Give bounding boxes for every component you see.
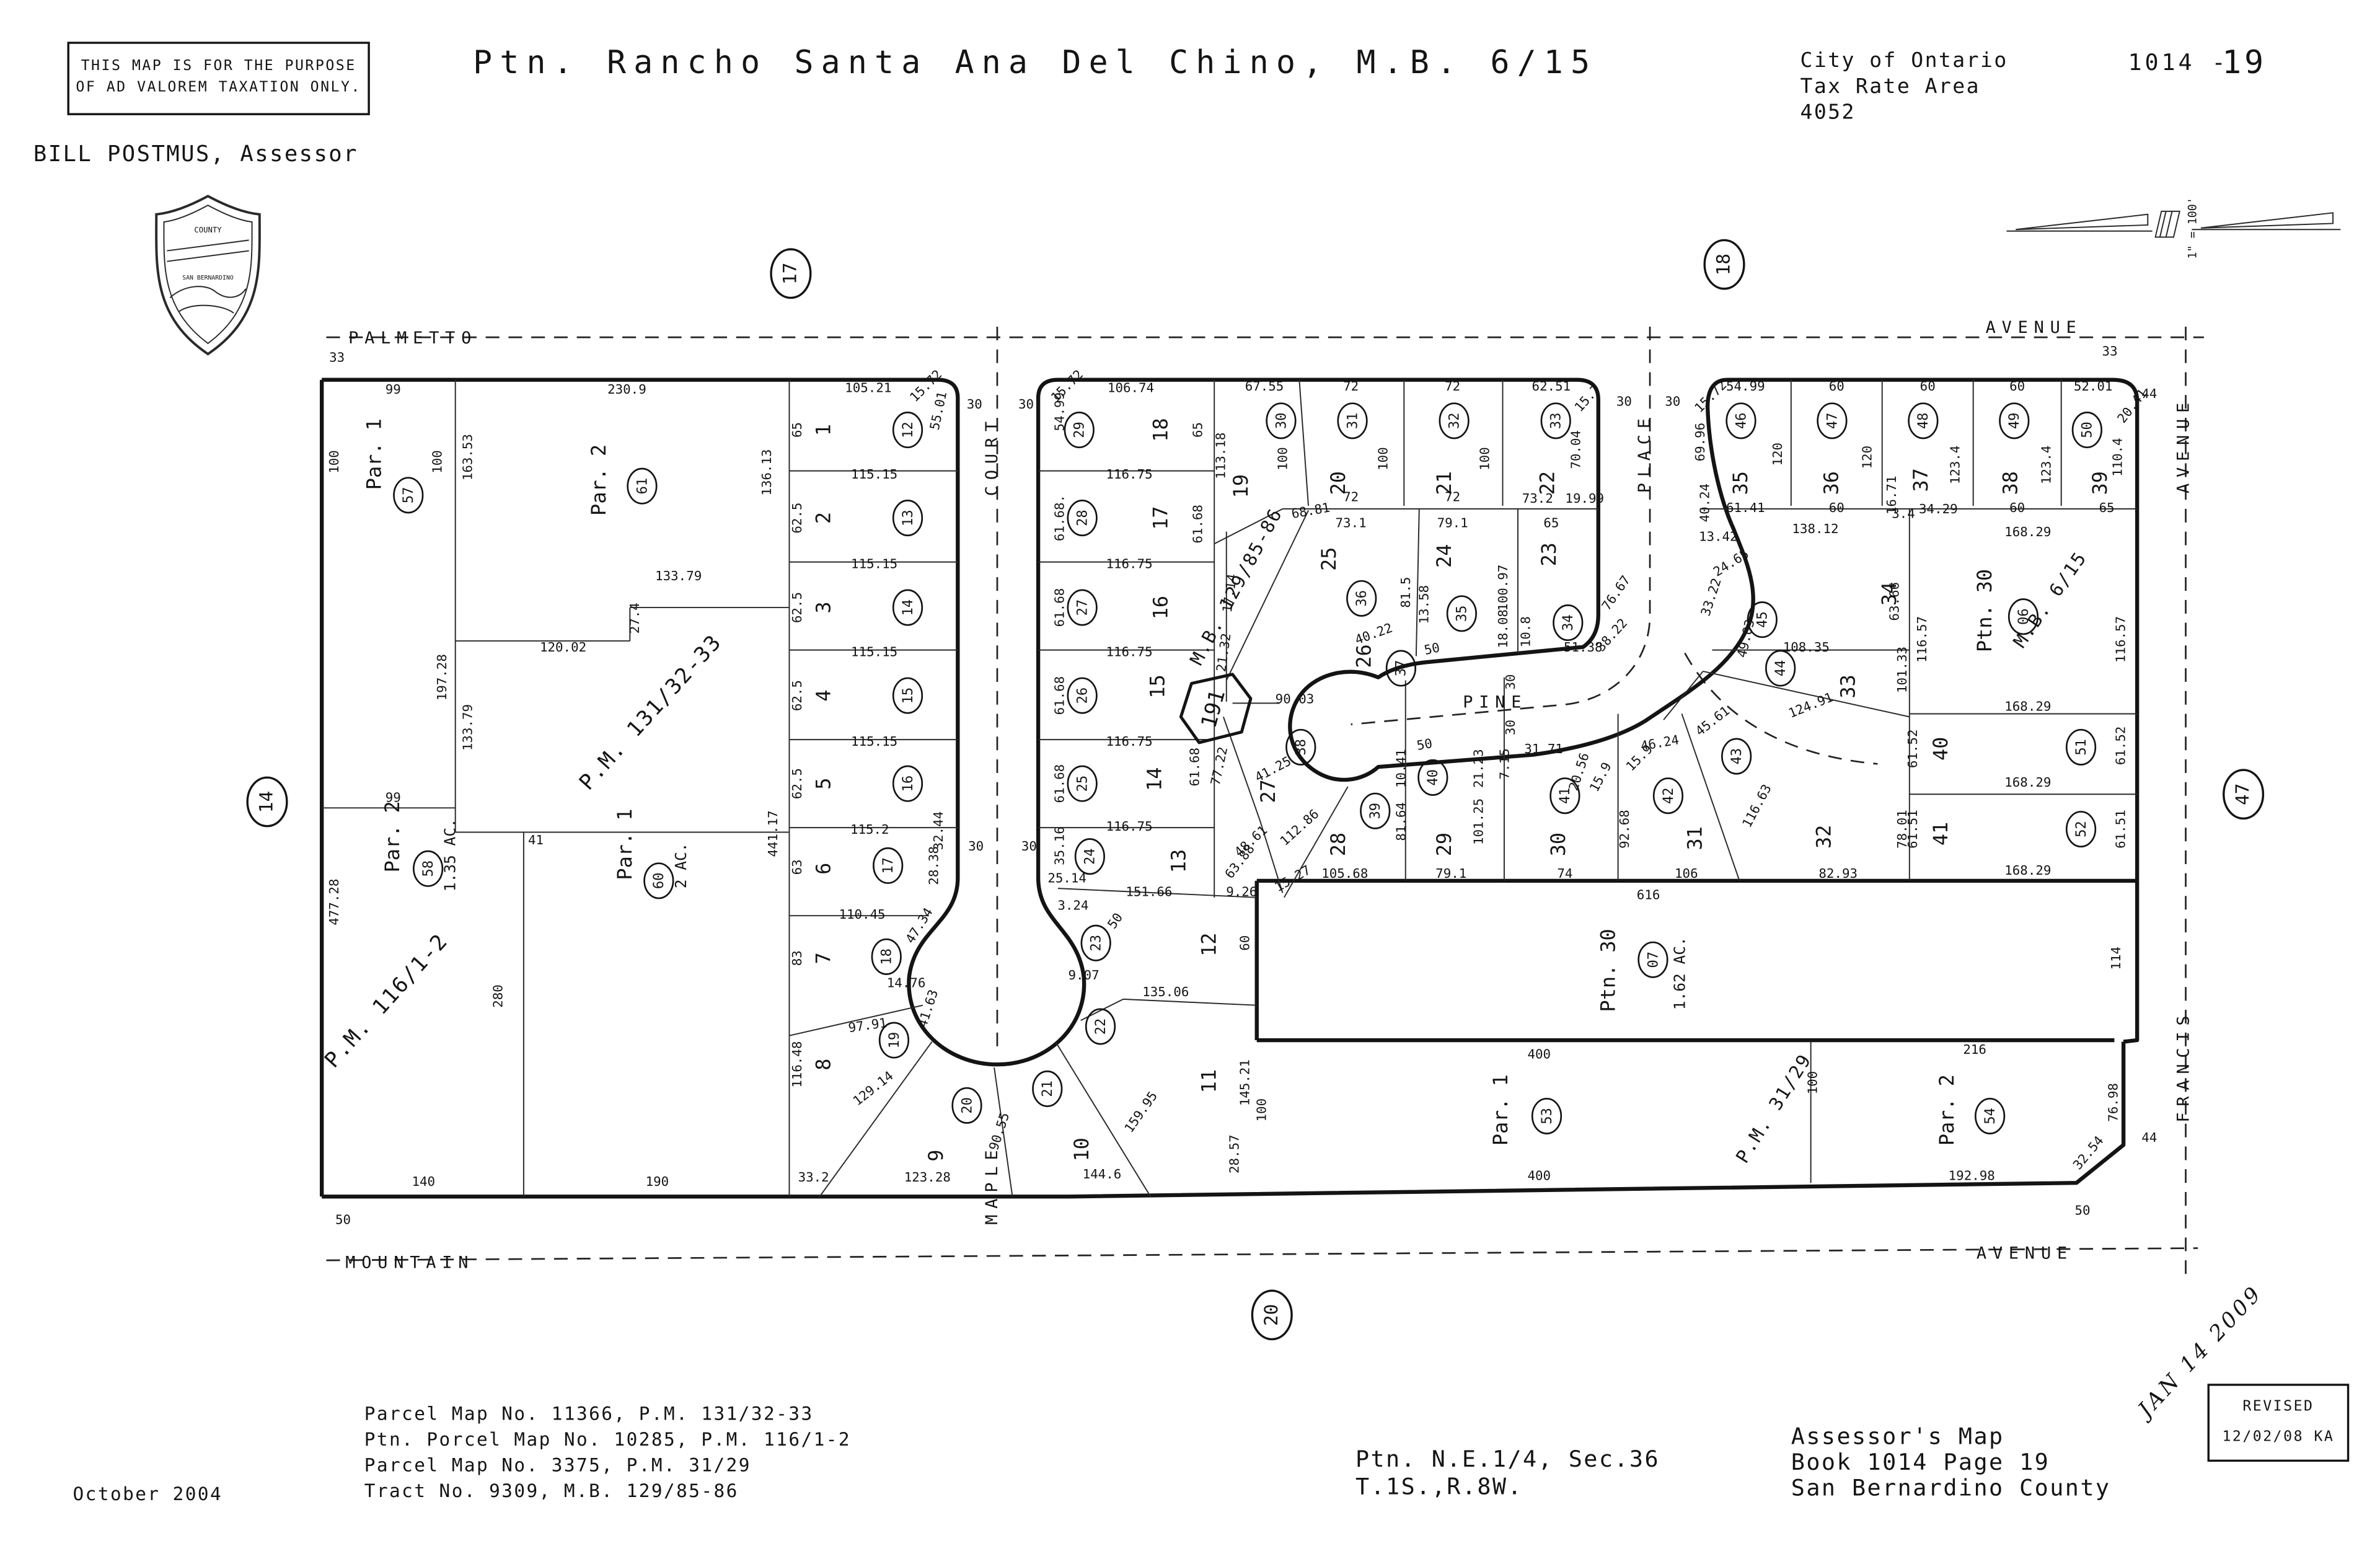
map-label: 7: [812, 952, 835, 964]
parcel-ref-number: 51: [2074, 739, 2089, 756]
map-label: 61.51: [2113, 810, 2128, 849]
section-reference: Ptn. N.E.1/4, Sec.36 T.1S.,R.8W.: [1355, 1446, 1660, 1500]
map-label: 32.44: [931, 811, 946, 850]
map-label: 133.79: [461, 704, 475, 751]
map-label: 50: [2074, 1203, 2090, 1218]
map-label: 113.18: [1213, 433, 1228, 479]
map-label: Par. 2: [1935, 1074, 1959, 1146]
map-label: 2: [812, 512, 835, 524]
map-label: 192.98: [1949, 1168, 1995, 1183]
map-label: 63: [790, 859, 804, 875]
reference-line2: Ptn. Porcel Map No. 10285, P.M. 116/1-2: [364, 1429, 851, 1450]
map-label: 168.29: [2004, 775, 2051, 790]
parcel-ref-number: 13: [901, 510, 916, 526]
map-label: 13.42: [1699, 529, 1738, 544]
map-label: 45.61: [1693, 703, 1732, 738]
tract-191-number: 191: [1196, 687, 1230, 731]
street-label-place: PLACE: [1635, 412, 1654, 493]
map-label: 69.96: [1693, 423, 1708, 462]
map-label: 41: [528, 833, 544, 847]
map-label: 123.4: [1948, 446, 1963, 485]
map-label: 38: [1999, 471, 2022, 495]
map-label: 9.07: [1069, 968, 1100, 983]
map-label: 62.51: [1532, 379, 1571, 394]
disclaimer-line2: OF AD VALOREM TAXATION ONLY.: [76, 78, 361, 95]
map-label: 197.28: [434, 654, 449, 700]
map-label: 135.06: [1142, 984, 1189, 999]
map-label: 23: [1537, 542, 1561, 566]
map-label: 3: [812, 601, 835, 613]
section-line1: Ptn. N.E.1/4, Sec.36: [1355, 1446, 1660, 1472]
parcel-ref-number: 50: [2080, 422, 2096, 438]
map-label: 190: [646, 1174, 669, 1189]
map-label: 25: [1317, 547, 1341, 571]
map-label: 280: [491, 984, 506, 1008]
parcel-ref-number: 60: [651, 873, 667, 890]
map-label: 76.98: [2105, 1083, 2120, 1122]
revised-label: REVISED: [2242, 1398, 2314, 1415]
map-label: 400: [1527, 1046, 1551, 1061]
map-label: P.M. 116/1-2: [320, 929, 453, 1073]
book-page-ref: 1014 - 19: [2128, 44, 2267, 81]
map-label: 81.5: [1398, 577, 1413, 608]
map-label: 112.86: [1277, 806, 1322, 849]
parcel-ref-number: 18: [879, 948, 895, 965]
parcel-ref-number: 21: [1040, 1080, 1056, 1097]
map-label: 120: [1770, 443, 1785, 466]
map-label: 50: [335, 1212, 351, 1227]
map-label: 24: [1432, 544, 1456, 568]
map-label: 12: [1197, 933, 1221, 956]
parcel-ref-number: 17: [881, 857, 896, 874]
map-label: 115.15: [851, 556, 897, 571]
map-label: 36: [1820, 471, 1843, 495]
revised-date: 12/02/08 KA: [2222, 1428, 2334, 1445]
map-label: 33: [1836, 674, 1860, 698]
map-label: Ptn. 30: [1973, 569, 1996, 652]
parcel-ref-number: 18: [1713, 254, 1734, 275]
map-label: 116.75: [1106, 819, 1152, 834]
parcel-ref-number: 49: [2007, 413, 2022, 430]
revised-border: [2208, 1385, 2348, 1460]
map-label: 15.72: [1691, 378, 1729, 415]
tax-rate-area-number: 4052: [1800, 99, 1855, 123]
map-label: 133.79: [655, 568, 702, 583]
map-label: 61.68: [1052, 588, 1067, 627]
map-label: 82.93: [1818, 866, 1858, 881]
map-label: 30: [1546, 833, 1570, 856]
map-label: 116.75: [1106, 644, 1152, 659]
parcel-ref-number: 35: [1455, 606, 1470, 622]
map-label: 54.99: [1726, 379, 1765, 394]
street-label-palmetto: PALMETTO: [348, 329, 477, 348]
map-label: 108.35: [1783, 640, 1830, 655]
block-boundary-east: [1257, 881, 2137, 1042]
reference-line3: Parcel Map No. 3375, P.M. 31/29: [364, 1455, 751, 1476]
map-label: Par. 2: [587, 444, 610, 516]
map-label: 72: [1445, 379, 1460, 394]
footer-references: Parcel Map No. 11366, P.M. 131/32-33 Ptn…: [364, 1403, 851, 1501]
book-prefix: 1014 -: [2128, 49, 2228, 76]
map-label: 52.01: [2074, 379, 2113, 394]
street-label-pine: PINE: [1463, 693, 1527, 712]
parcel-ref-number: 22: [1093, 1018, 1109, 1035]
parcel-ref-number: 19: [887, 1032, 902, 1049]
map-label: 41: [1929, 822, 1952, 846]
parcel-ref-number: 47: [1825, 413, 1840, 430]
map-label: 62.5: [790, 503, 804, 534]
map-label: 61.41: [1726, 500, 1765, 515]
map-label: 62.5: [790, 592, 804, 623]
map-label: 116.63: [1739, 782, 1774, 830]
map-label: 40.24: [1698, 484, 1712, 523]
map-label: 441.17: [765, 810, 780, 857]
map-label: 4: [812, 690, 835, 702]
parcel-ref-number: 20: [959, 1097, 975, 1114]
map-label: 72: [1343, 490, 1359, 505]
parcel-ref-number: 47: [2232, 784, 2253, 805]
map-label: 33.22: [1698, 576, 1724, 618]
map-label: 60: [1920, 379, 1936, 394]
map-label: 110.45: [839, 907, 885, 922]
map-label: 33: [329, 350, 345, 364]
parcel-ref-number: 14: [901, 599, 916, 616]
map-label: 145.21: [1238, 1059, 1253, 1106]
map-label: 61.51: [1905, 810, 1920, 849]
map-label: 21.23: [1471, 749, 1486, 788]
map-label: 105.21: [845, 380, 891, 395]
map-label: 39: [2088, 471, 2112, 495]
scale-label: 1" = 100': [2187, 197, 2200, 258]
map-title-line3: San Bernardino County: [1791, 1475, 2111, 1501]
map-label: 100: [1254, 1098, 1269, 1122]
map-label: 216: [1963, 1042, 1986, 1057]
map-label: 230.9: [607, 382, 646, 397]
map-label: 115.15: [851, 734, 897, 749]
map-label: 116.75: [1106, 734, 1152, 749]
map-label: 163.53: [461, 434, 475, 480]
map-label: 65: [1191, 422, 1205, 438]
map-label: 61.68.: [1052, 495, 1067, 541]
map-label: 35.16: [1052, 826, 1067, 865]
map-label: 114: [2109, 947, 2123, 970]
parcel-ref-number: 61: [635, 478, 650, 495]
map-label: 44: [2141, 1130, 2157, 1145]
map-label: Par. 1: [363, 418, 386, 490]
map-label: 9: [924, 1150, 948, 1162]
map-label: 61.68: [1052, 676, 1067, 715]
parcel-ref-number: 53: [1540, 1108, 1555, 1124]
parcel-ref-number: 23: [1089, 935, 1104, 952]
parcel-ref-number: 42: [1661, 787, 1677, 804]
parcel-ref-number: 31: [1345, 413, 1360, 430]
map-label: 17: [1148, 506, 1172, 529]
seal-bottom-text: SAN BERNARDINO: [182, 275, 234, 281]
scale-bar: 1" = 100': [2007, 197, 2341, 258]
map-label: 5: [812, 778, 835, 790]
disclaimer-line1: THIS MAP IS FOR THE PURPOSE: [81, 57, 356, 74]
map-label: 60: [1829, 500, 1844, 515]
map-label: 168.29: [2004, 524, 2051, 539]
map-label: 47.34: [902, 905, 936, 946]
parcel-ref-number: 24: [1083, 848, 1098, 865]
parcel-ref-number: 41: [1558, 787, 1573, 804]
map-label: Par. 2: [381, 801, 404, 872]
map-label: 10.41: [1394, 749, 1409, 788]
map-label: 3.24: [1057, 898, 1088, 912]
map-label: P.M. 31/29: [1732, 1049, 1816, 1167]
map-label: 62.5: [790, 680, 804, 711]
disclaimer-box: THIS MAP IS FOR THE PURPOSE OF AD VALORE…: [68, 43, 369, 114]
map-label: 19: [1229, 474, 1253, 498]
map-label: P.M. 131/32-33: [575, 630, 727, 795]
map-label: 124.91: [1786, 689, 1835, 720]
map-label: 33: [2102, 344, 2118, 359]
map-label: 27.4: [627, 603, 642, 634]
map-label: 9.26: [1226, 884, 1257, 899]
map-label: 136.13: [759, 449, 774, 496]
map-label: 33.2: [798, 1170, 829, 1185]
map-label: Ptn. 30: [1597, 929, 1620, 1012]
map-label: 92.68: [1617, 810, 1632, 849]
map-label: 7.15: [1497, 748, 1512, 779]
map-label: Par. 1: [613, 809, 637, 880]
parcel-ref-number: 26: [1075, 687, 1090, 704]
map-label: 50: [1104, 910, 1126, 931]
revised-box: REVISED 12/02/08 KA: [2208, 1385, 2348, 1460]
map-label: 49.03: [1734, 618, 1757, 659]
lot-lines-east-block: [1700, 380, 2137, 1183]
map-label: 61.68: [1188, 748, 1202, 787]
map-label: 70.04: [1568, 430, 1583, 469]
map-label: 116.57: [2113, 616, 2128, 663]
map-label: 67.55: [1245, 379, 1284, 394]
parcel-ref-number: 15: [901, 687, 916, 704]
map-label: 76.67: [1599, 573, 1634, 613]
map-label: 73.1: [1336, 515, 1367, 530]
parcel-ref-number: 36: [1354, 590, 1370, 607]
map-label: 11: [1197, 1069, 1221, 1093]
parcel-ref-number: 20: [1261, 1304, 1282, 1326]
map-label: 2 AC.: [672, 843, 690, 889]
tax-rate-block: City of Ontario Tax Rate Area 4052: [1800, 48, 2008, 123]
map-label: 63.66: [1887, 582, 1902, 621]
parcel-ref-number: 28: [1075, 510, 1090, 526]
street-label-avenue-bottom: AVENUE: [1977, 1244, 2073, 1263]
map-label: 25.14: [1047, 870, 1086, 885]
map-label: 19.99: [1565, 491, 1604, 506]
parcel-ref-number: 12: [901, 422, 916, 438]
parcel-ref-number: 54: [1983, 1108, 1998, 1124]
map-label: 50: [1416, 736, 1434, 753]
map-label: 60: [2009, 500, 2025, 515]
map-label: 60: [2009, 379, 2025, 394]
map-label: 28: [1326, 833, 1350, 856]
map-label: 13: [1167, 849, 1191, 873]
map-label: 73.2: [1522, 491, 1553, 506]
map-label: 400: [1527, 1168, 1551, 1183]
map-label: 144.6: [1083, 1167, 1122, 1182]
map-label: 16: [1148, 596, 1172, 619]
parcel-ref-number: 38: [1294, 739, 1309, 756]
parcel-ref-number: 07: [1646, 952, 1661, 968]
sheet-title: Ptn. Rancho Santa Ana Del Chino, M.B. 6/…: [473, 44, 1597, 81]
map-label: 99: [386, 382, 401, 397]
map-label: 151.66: [1126, 884, 1172, 899]
scale-hatch-icon: [2156, 211, 2180, 237]
page-number: 19: [2222, 44, 2267, 81]
map-label: 26: [1352, 644, 1375, 668]
map-label: 28.38: [926, 846, 941, 885]
map-label: 115.15: [851, 644, 897, 659]
lot-lines-west: [322, 380, 1150, 1197]
tax-rate-area-label: Tax Rate Area: [1800, 74, 1980, 98]
map-label: 477.28: [327, 879, 342, 925]
map-label: 37: [1909, 468, 1933, 492]
map-label: 168.29: [2004, 863, 2051, 878]
map-label: 30: [1021, 839, 1037, 854]
parcel-ref-number: 48: [1916, 413, 1931, 430]
map-label: 61.68: [1191, 505, 1205, 544]
map-label: 79.1: [1435, 866, 1466, 881]
map-label: 62.5: [790, 768, 804, 799]
map-label: 90.55: [986, 1111, 1012, 1152]
map-label: 72: [1343, 379, 1359, 394]
map-title-line1: Assessor's Map: [1791, 1423, 2004, 1449]
map-label: 10.8: [1518, 616, 1533, 647]
map-label: 65: [790, 422, 804, 438]
parcel-ref-number: 39: [1368, 803, 1383, 819]
map-label: 29: [1432, 833, 1456, 856]
map-label: 30: [968, 839, 984, 854]
map-label: 3.4: [1892, 506, 1915, 521]
parcel-ref-number: 45: [1755, 611, 1771, 628]
map-label: 168.29: [2004, 699, 2051, 714]
reference-line1: Parcel Map No. 11366, P.M. 131/32-33: [364, 1403, 814, 1424]
map-label: 77.22: [1208, 746, 1230, 787]
tract-191-badge: 191: [1181, 674, 1251, 743]
map-label: 116.75: [1106, 556, 1152, 571]
map-label: 20.41: [2114, 386, 2149, 426]
reference-line4: Tract No. 9309, M.B. 129/85-86: [364, 1480, 739, 1501]
map-label: 1.35 AC.: [441, 818, 459, 891]
map-label: 100: [430, 450, 445, 474]
parcel-ref-number: 40: [1426, 769, 1441, 786]
parcel-ref-number: 33: [1549, 413, 1564, 430]
parcel-ref-number: 46: [1734, 413, 1749, 430]
map-label: 100.97: [1496, 565, 1510, 611]
map-label: 41.63: [915, 987, 941, 1029]
map-label: 74: [1557, 866, 1572, 881]
map-label: 116.57: [1915, 616, 1929, 663]
map-label: 13.58: [1416, 585, 1431, 624]
map-label: 140: [412, 1174, 435, 1189]
parcel-ref-number: 34: [1561, 614, 1576, 631]
map-label: 30: [1616, 394, 1632, 409]
county-seal: COUNTY SAN BERNARDINO: [156, 196, 260, 354]
map-label: 1: [812, 424, 835, 436]
map-label: 138.12: [1792, 521, 1838, 536]
map-label: 61.52: [2113, 727, 2128, 766]
parcel-ref-number: 17: [779, 263, 800, 285]
map-label: 30: [967, 397, 982, 412]
map-label: 60: [1829, 379, 1844, 394]
map-label: 34.29: [1919, 501, 1958, 516]
map-label: 60: [1238, 935, 1253, 951]
map-label: 79.1: [1437, 515, 1468, 530]
map-label: 6: [812, 863, 835, 875]
map-label: 110.4: [2110, 438, 2125, 477]
map-label: 35: [1729, 471, 1752, 495]
map-label: 100: [1477, 447, 1492, 470]
map-label: 30: [1665, 394, 1680, 409]
map-label: 105.68: [1321, 866, 1368, 881]
map-label: 32: [1812, 825, 1835, 849]
assessor-map-sheet: THIS MAP IS FOR THE PURPOSE OF AD VALORE…: [0, 0, 2380, 1546]
parcel-ref-number: 43: [1729, 748, 1745, 765]
parcel-ref-number: 44: [1773, 660, 1789, 677]
map-label: 90.03: [1276, 691, 1315, 706]
map-label: 72: [1445, 490, 1460, 505]
map-label: 28.57: [1227, 1134, 1241, 1173]
map-label: 120: [1860, 446, 1875, 469]
map-label: 616: [1637, 887, 1660, 902]
map-label: 15: [1145, 674, 1169, 698]
map-label: 32.54: [2070, 1133, 2107, 1172]
map-label: 120.02: [540, 640, 586, 655]
street-label-francis: FRANCIS: [2174, 1010, 2193, 1123]
map-label: 55.01: [927, 391, 950, 431]
map-label: 101.25: [1471, 798, 1486, 845]
section-line2: T.1S.,R.8W.: [1355, 1473, 1523, 1500]
parcel-ref-number: 30: [1274, 413, 1289, 430]
map-label: 116.75: [1106, 467, 1152, 482]
parcel-ref-number: 16: [901, 775, 916, 792]
map-label: 8: [812, 1059, 835, 1071]
scale-arrow-right: [2192, 213, 2340, 229]
map-label: 65: [1543, 515, 1559, 530]
map-label: 31: [1683, 826, 1706, 850]
map-label: 83: [790, 950, 804, 966]
city-name: City of Ontario: [1800, 48, 2008, 72]
map-label: 65: [2099, 500, 2115, 515]
map-label: 106: [1675, 866, 1698, 881]
parcel-ref-number: 52: [2074, 821, 2089, 837]
street-label-mountain: MOUNTAIN: [345, 1253, 474, 1272]
map-label: 1.62 AC.: [1670, 937, 1688, 1010]
map-label: 123.4: [2039, 446, 2054, 485]
map-label: 14: [1142, 767, 1166, 791]
street-label-avenue-right: AVENUE: [2174, 397, 2193, 493]
map-label: 15.27: [1272, 862, 1313, 894]
map-label: 81.64: [1394, 802, 1409, 841]
map-label: 61.68: [1052, 764, 1067, 803]
parcel-ref-number: 25: [1075, 775, 1090, 792]
map-label: 30: [1503, 720, 1518, 735]
map-labels: PALMETTOAVENUEMOUNTAINAVENUEMAPLECOURTPI…: [320, 318, 2193, 1273]
map-label: 30: [1503, 674, 1518, 690]
parcel-ref-number: 57: [401, 487, 416, 504]
map-label: 15.9: [1587, 760, 1615, 794]
parcel-ref-number: 32: [1447, 413, 1462, 430]
map-label: 100: [1375, 447, 1390, 470]
parcel-ref-number: 14: [256, 791, 277, 813]
street-label-maple: MAPLE: [982, 1144, 1002, 1225]
map-label: 159.95: [1121, 1089, 1160, 1135]
map-label: 40: [1929, 737, 1952, 761]
assessor-name: BILL POSTMUS, Assessor: [33, 141, 358, 167]
map-label: 123.28: [904, 1170, 951, 1185]
